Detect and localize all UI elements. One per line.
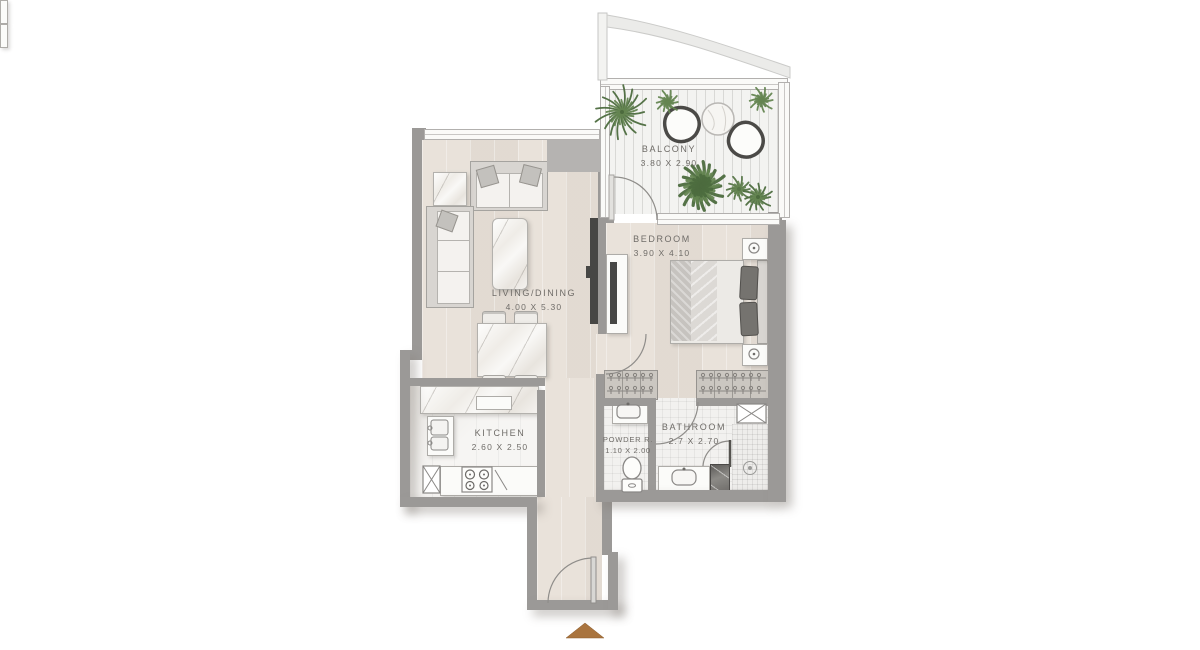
wall-entry-bottom [527, 600, 618, 610]
balcony-window-top [600, 78, 788, 90]
room-label-bathroom: BATHROOM 2.7 X 2.70 [662, 421, 726, 447]
room-dims: 4.00 X 5.30 [492, 301, 576, 314]
floor-plan: BALCONY 3.80 X 2.90 BEDROOM 3.90 X 4.10 … [0, 0, 1200, 650]
wall-entry-right-upper [602, 497, 612, 555]
room-dims: 3.90 X 4.10 [633, 247, 691, 260]
wall-column-balcony [547, 138, 605, 172]
side-table [433, 172, 467, 206]
wardrobe [604, 370, 658, 400]
room-name: BALCONY [641, 143, 698, 157]
entry-floor [537, 497, 602, 600]
balcony-window-right [778, 82, 790, 218]
bed-pillow [739, 266, 759, 301]
shower-floor [732, 424, 768, 490]
room-label-balcony: BALCONY 3.80 X 2.90 [641, 143, 698, 169]
room-name: BATHROOM [662, 421, 726, 435]
coffee-table [492, 218, 528, 290]
wall-entry-right-lower [608, 552, 618, 610]
tv-bedroom [610, 262, 617, 324]
hallway-floor [545, 378, 596, 497]
wall-bedroom-powder [604, 398, 656, 406]
balcony-window-left [600, 86, 610, 218]
kitchen-counter-bottom [440, 466, 539, 496]
bathroom-vanity [658, 466, 710, 492]
wardrobe [696, 370, 771, 400]
wall-bedroom-bathroom [696, 398, 770, 406]
room-label-living-dining: LIVING/DINING 4.00 X 5.30 [492, 287, 576, 313]
wall-left-lower [400, 350, 410, 507]
balcony-door-window [657, 213, 780, 225]
entry-arrow [566, 623, 604, 638]
tv-mount [586, 266, 590, 278]
nightstand [742, 238, 768, 260]
entry-panel [0, 24, 8, 48]
entry-arrow-icon [566, 623, 604, 638]
room-label-powder-room: POWDER R. 1.10 X 2.00 [603, 434, 653, 457]
room-name: POWDER R. [603, 434, 653, 445]
room-dims: 3.80 X 2.90 [641, 157, 698, 170]
wall-kitchen-hallway [537, 390, 545, 497]
kitchen-sink-cabinet [427, 416, 454, 456]
room-name: BEDROOM [633, 233, 691, 247]
kitchen-counter-recess [476, 396, 512, 410]
wall-entry-left [527, 497, 537, 610]
nightstand [742, 344, 768, 366]
wall-living-kitchen [400, 378, 545, 386]
wall-kitchen-bottom [400, 497, 537, 507]
room-dims: 1.10 X 2.00 [603, 445, 653, 456]
room-label-kitchen: KITCHEN 2.60 X 2.50 [472, 427, 529, 453]
bed [670, 260, 744, 344]
room-name: LIVING/DINING [492, 287, 576, 301]
wall-right [768, 220, 786, 502]
room-name: KITCHEN [472, 427, 529, 441]
room-dims: 2.7 X 2.70 [662, 435, 726, 448]
room-dims: 2.60 X 2.50 [472, 441, 529, 454]
wall-left-upper [412, 128, 422, 360]
tv-living [590, 218, 598, 324]
entry-panel [0, 0, 8, 24]
living-window [424, 129, 600, 140]
facade-curve [598, 13, 790, 80]
room-label-bedroom: BEDROOM 3.90 X 4.10 [633, 233, 691, 259]
bed-pillow [739, 302, 759, 337]
dining-table [477, 323, 547, 377]
wall-bottom-right [596, 490, 770, 502]
